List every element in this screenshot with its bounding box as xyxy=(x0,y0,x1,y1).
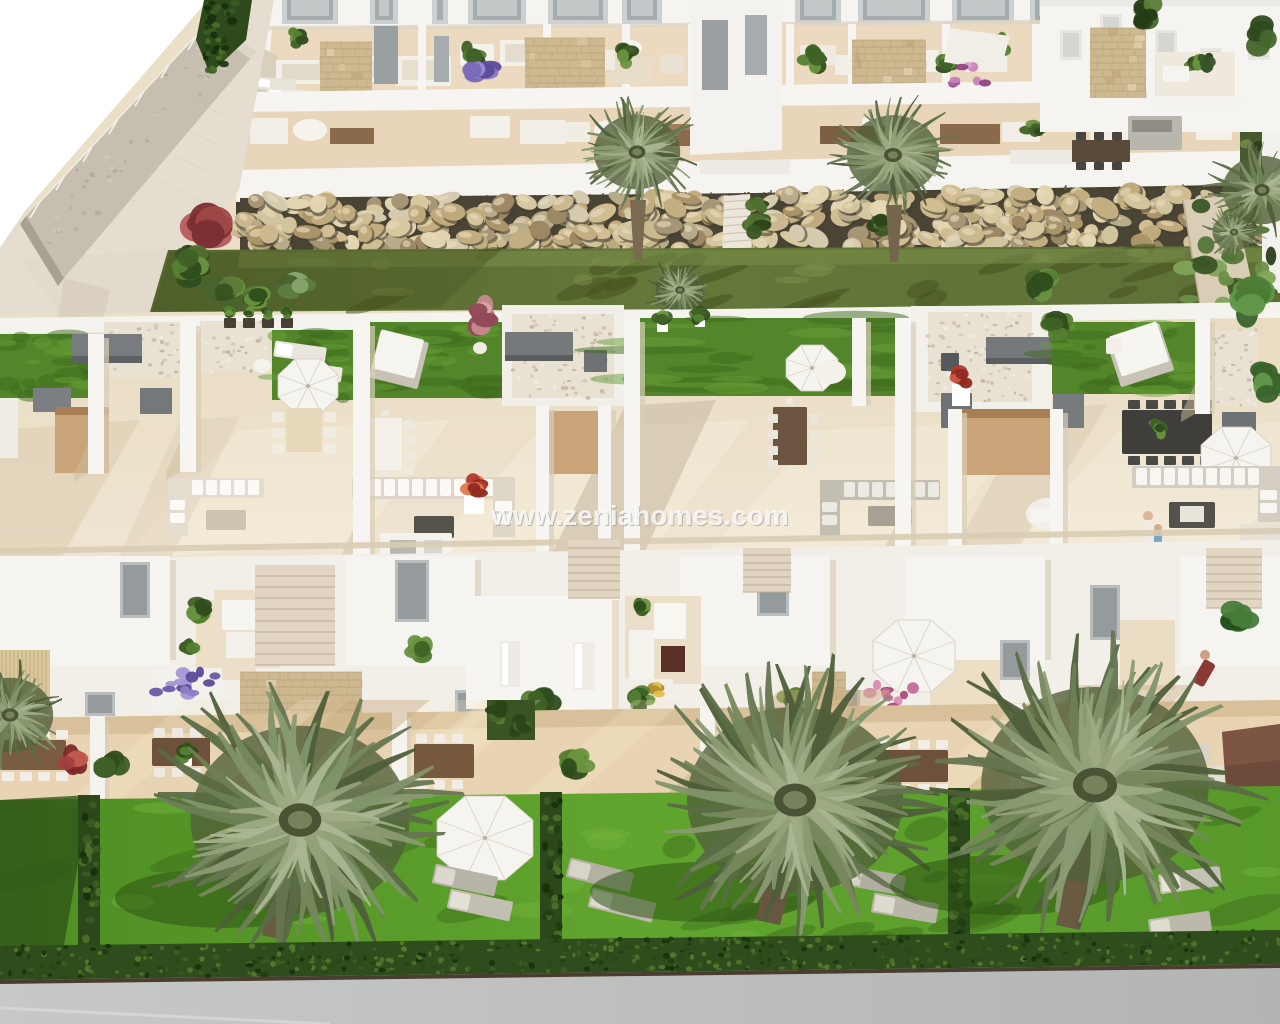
svg-text:www.zeniahomes.com: www.zeniahomes.com xyxy=(490,500,789,531)
